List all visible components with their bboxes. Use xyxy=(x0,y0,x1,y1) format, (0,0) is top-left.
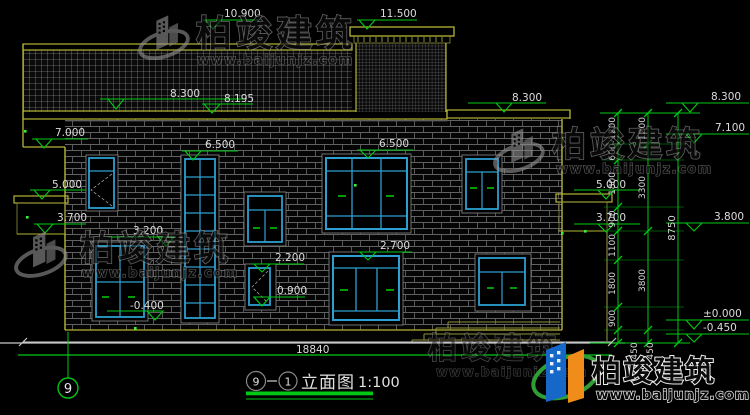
elevation-label-ground-right: -0.450 xyxy=(703,322,737,334)
window-main-lower xyxy=(329,252,403,325)
watermark-url: www.baijunjz.com xyxy=(556,162,713,177)
dim-mid-1: 3300 xyxy=(638,176,648,199)
dim-inner-6: 900 xyxy=(608,310,618,327)
dim-inner-3: 900 xyxy=(608,210,618,227)
window-upper-left xyxy=(86,155,118,211)
window-lower-right xyxy=(475,254,531,311)
elevation-label-left-ground: -0.400 xyxy=(130,300,164,312)
elevation-label-left-balcony-top: 5.000 xyxy=(52,179,82,191)
elevation-label-floor-zero: ±0.000 xyxy=(703,308,742,320)
dim-inner-4: 1100 xyxy=(608,234,618,257)
elevation-label-roof-eave-right: 8.300 xyxy=(512,92,542,104)
elevation-drawing: 11.500 10.900 8.300 8.195 8.300 7.000 5.… xyxy=(0,0,750,415)
watermark-url: www.baijunjz.com xyxy=(596,387,750,403)
watermark-brand: 柏竣建筑 xyxy=(552,125,704,165)
elevation-label-roof-eave-left: 8.300 xyxy=(170,88,200,100)
watermark-brand: 柏竣建筑 xyxy=(428,331,560,365)
watermark-url: www.baijunjz.com xyxy=(82,266,239,281)
overall-width-label: 18840 xyxy=(296,344,329,356)
elevation-label-lower-window-top: 2.700 xyxy=(380,240,410,252)
window-mid-landing xyxy=(244,192,286,246)
elevation-label-small-window-sill: 0.900 xyxy=(277,285,307,297)
elevation-label-roof-eave-mid: 8.195 xyxy=(224,93,254,105)
watermark-brand: 柏竣建筑 xyxy=(80,229,232,269)
title-underline xyxy=(246,392,373,396)
window-main-upper xyxy=(322,154,411,233)
elevation-label-right-eave: 7.100 xyxy=(715,122,745,134)
elevation-label-stair-window-top: 6.500 xyxy=(205,139,235,151)
watermark-brand: 柏竣建筑 xyxy=(592,354,716,388)
elevation-label-right-level: 3.800 xyxy=(714,211,744,223)
dim-mid-2: 3800 xyxy=(638,269,648,292)
title-axis-start: 9 xyxy=(253,376,260,389)
title-axis-end: 1 xyxy=(285,376,292,389)
watermark-brand: 柏竣建筑 xyxy=(196,14,356,55)
elevation-label-parapet-top: 11.500 xyxy=(380,8,417,20)
title-name: 立面图 xyxy=(301,373,355,393)
dim-total-label: 8750 xyxy=(667,215,678,240)
watermark-url: www.baijunjz.com xyxy=(197,53,354,68)
elevation-label-main-window-top: 6.500 xyxy=(379,138,409,150)
dim-inner-5: 1800 xyxy=(608,272,618,295)
axis-bubble-label: 9 xyxy=(64,382,72,397)
title-scale: 1:100 xyxy=(358,375,400,391)
elevation-label-small-window-top: 2.200 xyxy=(275,252,305,264)
elevation-label-gable-bottom: 7.000 xyxy=(55,127,85,139)
elevation-label-right-roof: 8.300 xyxy=(711,91,741,103)
elevation-label-left-balcony-floor: 3.700 xyxy=(57,212,87,224)
